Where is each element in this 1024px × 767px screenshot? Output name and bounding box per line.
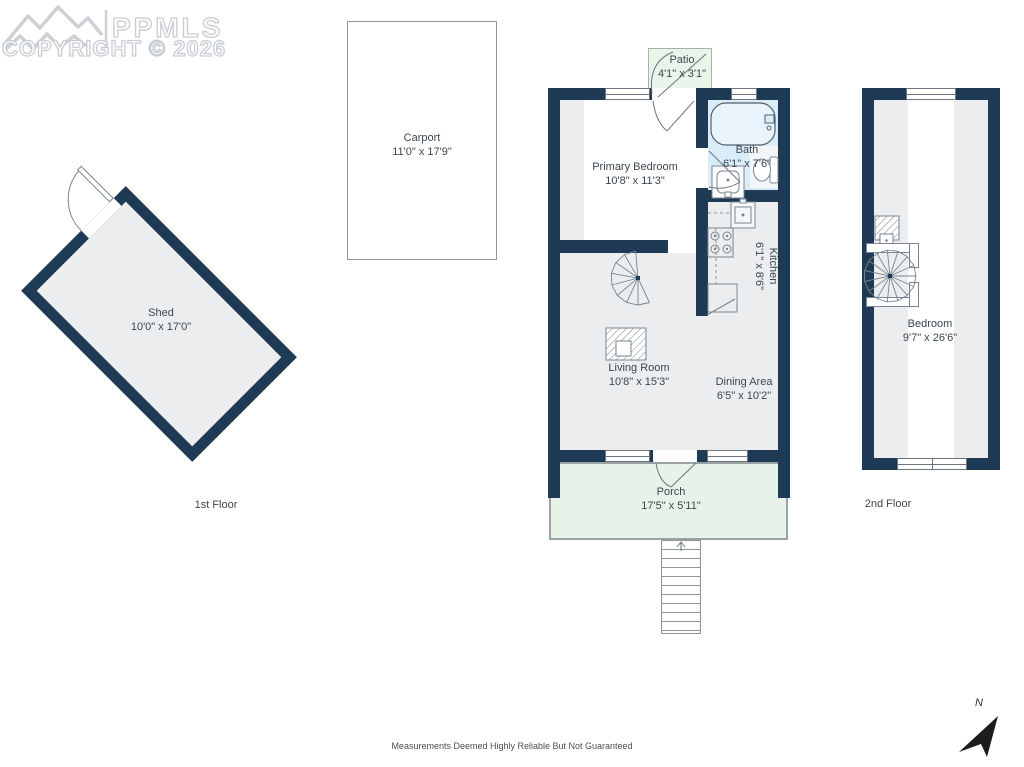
- north-label: N: [975, 697, 983, 709]
- north-arrow-icon: [959, 716, 998, 757]
- stove-icon: [708, 228, 733, 257]
- kitchen-label: Kitchen6'1" x 8'6": [752, 242, 780, 290]
- copyright-watermark: COPYRIGHT © 2026: [2, 36, 226, 62]
- porch-label: Porch17'5" x 5'11": [641, 485, 701, 513]
- carport-label: Carport11'0" x 17'9": [392, 131, 452, 159]
- patio-label: Patio4'1" x 3'1": [658, 53, 706, 81]
- disclaimer-text: Measurements Deemed Highly Reliable But …: [391, 739, 632, 753]
- second-floor-title: 2nd Floor: [865, 497, 911, 511]
- kitchen-sink-icon: [731, 199, 755, 228]
- floor-plan-canvas: PPMLS COPYRIGHT © 2026: [0, 0, 1024, 767]
- spiral-stairs-2f-icon: [865, 244, 919, 307]
- shed-label: Shed10'0" x 17'0": [131, 306, 191, 334]
- dining-area-label: Dining Area6'5" x 10'2": [716, 375, 773, 403]
- bathtub-icon: [711, 103, 775, 145]
- chimney-2f-icon: [875, 216, 899, 247]
- fireplace-icon: [606, 328, 646, 360]
- first-floor-title: 1st Floor: [195, 498, 238, 512]
- stairs-direction-arrow-icon: [677, 542, 685, 551]
- bedroom-door-swing-icon: [653, 101, 694, 131]
- spiral-stairs-1f-icon: [611, 251, 649, 305]
- porch-door-swing-icon: [656, 463, 696, 487]
- living-room-label: Living Room10'8" x 15'3": [608, 361, 669, 389]
- primary-bedroom-label: Primary Bedroom10'8" x 11'3": [592, 160, 678, 188]
- bath-label: Bath6'1" x 7'6": [723, 143, 771, 171]
- fixtures-overlay: [0, 0, 1024, 767]
- bedroom2-label: Bedroom9'7" x 26'6": [903, 317, 957, 345]
